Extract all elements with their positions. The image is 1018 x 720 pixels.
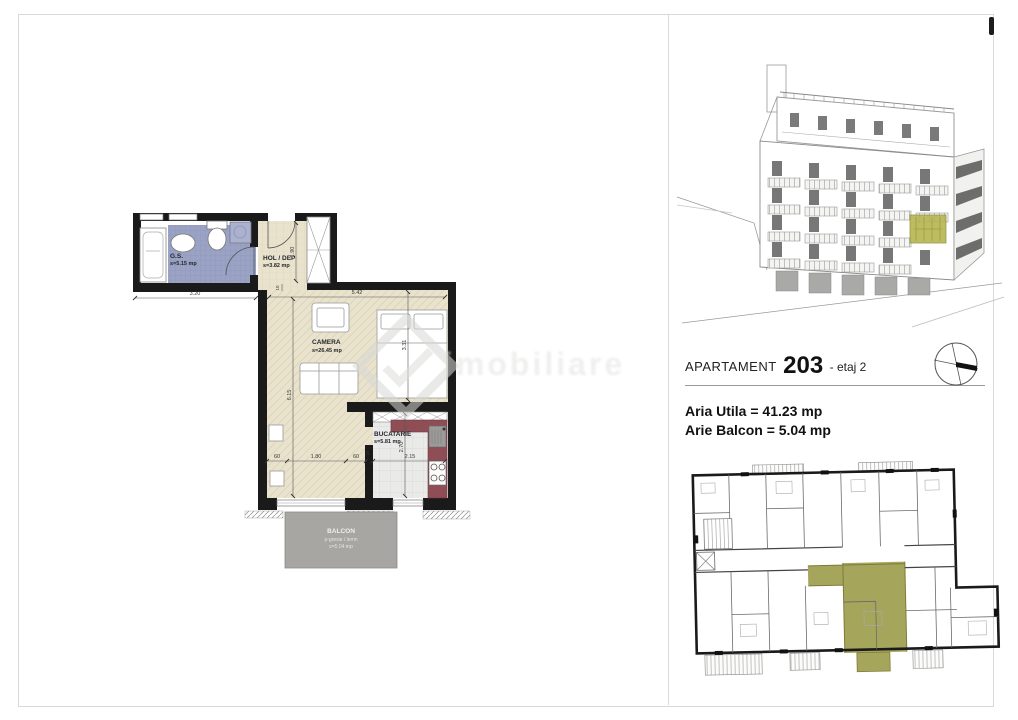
plan-sheet-page: { "main_plan": { "rooms": { "gs": {"name… — [0, 0, 1018, 720]
dim-bed-wall: 3.31 — [402, 340, 408, 351]
main-floor-plan: BALCON p-gresie / lemn s=5.04 mp — [115, 195, 475, 595]
main-floor-plan-svg: BALCON p-gresie / lemn s=5.04 mp — [115, 195, 475, 595]
washer — [230, 222, 251, 243]
balcon-finish-label: p-gresie / lemn — [324, 537, 357, 543]
aria-utila-line: Aria Utila = 41.23 mp — [685, 402, 985, 421]
dim-gs-width: 3.20 — [190, 291, 201, 297]
building-3d-svg — [672, 35, 1005, 330]
dim-camera-height: 6.15 — [287, 390, 293, 401]
arie-balcon-line: Arie Balcon = 5.04 mp — [685, 421, 985, 440]
room-area-camera: s=26.45 mp — [312, 348, 342, 354]
dim-window-right: 60 — [353, 454, 359, 460]
corner-registration-mark — [989, 17, 994, 35]
sink — [171, 234, 195, 252]
hall-closet — [307, 217, 330, 283]
side-furniture — [269, 425, 283, 441]
compass-icon — [930, 336, 986, 392]
building-3d-render — [672, 35, 1005, 330]
floor-overview-svg — [683, 452, 1013, 692]
dim-kitchen-offset: 15 — [365, 450, 370, 456]
apartment-title-label: APARTAMENT — [685, 359, 777, 374]
building-mass — [760, 65, 984, 280]
dim-kitchen-width: 2.15 — [405, 454, 416, 460]
north-compass — [930, 336, 986, 392]
room-label-gs: G.S. — [170, 253, 183, 260]
dim-camera-width: 5.42 — [352, 290, 363, 296]
room-label-hol: HOL / DEP — [263, 255, 296, 262]
toilet-bowl — [208, 228, 226, 250]
pillow — [381, 314, 410, 329]
apartment-number: 203 — [783, 352, 823, 379]
room-area-hol: s=3.82 mp — [263, 263, 290, 269]
room-area-bucatarie: s=5.81 mp — [374, 439, 401, 445]
side-furniture — [270, 471, 284, 486]
room-label-bucatarie: BUCATARIE — [374, 431, 412, 438]
room-label-camera: CAMERA — [312, 339, 341, 346]
panel-divider-line — [668, 14, 669, 705]
pillow — [414, 314, 443, 329]
overview-group — [693, 460, 1000, 676]
dim-window-left: 60 — [274, 454, 280, 460]
dim-hol-offset: 10 — [275, 285, 280, 291]
highlighted-apartment-203 — [808, 562, 907, 673]
sofa — [300, 363, 358, 394]
room-area-gs: s=5.15 mp — [170, 261, 197, 267]
dim-window-center: 1.80 — [311, 454, 322, 460]
area-summary: Aria Utila = 41.23 mp Arie Balcon = 5.04… — [685, 402, 985, 440]
balcon-area-label: s=5.04 mp — [329, 544, 353, 550]
stairs — [696, 519, 733, 571]
floor-overview-plan — [683, 452, 1013, 692]
balcony: BALCON p-gresie / lemn s=5.04 mp — [245, 511, 470, 568]
room-label-balcon: BALCON — [327, 528, 355, 535]
apartment-floor-suffix: - etaj 2 — [830, 360, 867, 374]
